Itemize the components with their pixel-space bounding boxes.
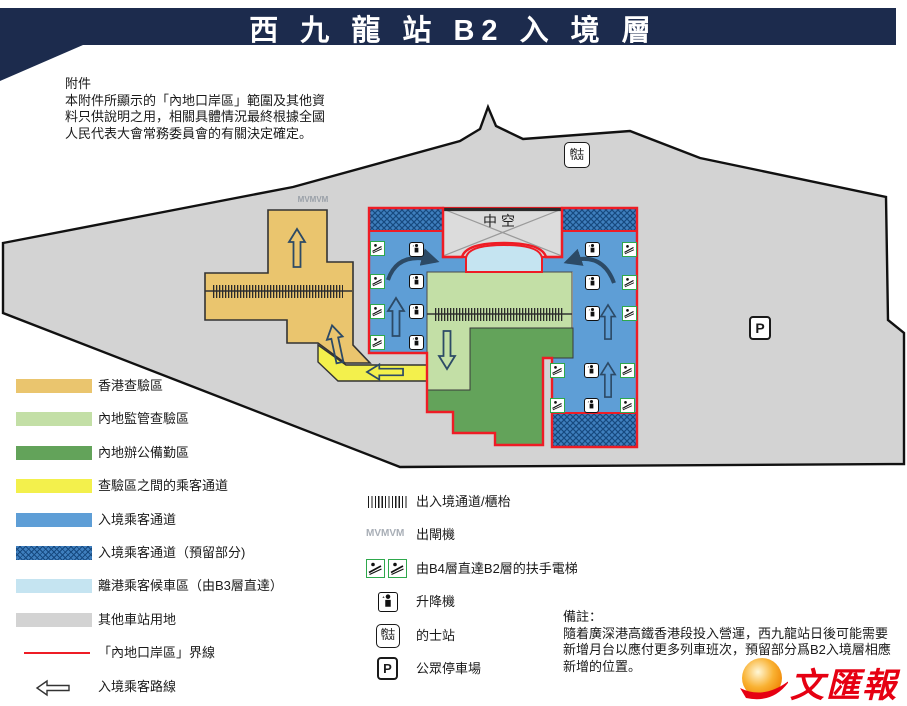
legend-swatch-lightgreen <box>16 412 92 426</box>
logo-sun-icon <box>736 654 788 706</box>
legend-item-departure-waiting: 離港乘客候車區（由B3層直達） <box>16 576 346 602</box>
symbol-legend-label: 出入境通道/櫃枱 <box>416 492 511 512</box>
symbol-legend-label: 升降機 <box>416 592 455 612</box>
exit-gates-symbol: MVMVM <box>366 528 404 539</box>
reserved-corridor-block <box>562 208 637 231</box>
counter-bar-hk <box>205 285 352 298</box>
taxi-icon-label: TAXI <box>570 156 583 162</box>
symbol-legend-label: 出閘機 <box>416 525 455 545</box>
boundary-line-swatch <box>24 652 90 654</box>
remark-note-heading: 備註： <box>563 609 907 626</box>
counters-symbol <box>368 496 408 508</box>
reserved-corridor-block <box>552 413 637 447</box>
legend-label: 「內地口岸區」界線 <box>98 643 215 663</box>
symbol-legend-item-counters: 出入境通道/櫃枱 <box>366 492 696 518</box>
legend-label: 入境乘客通道 <box>98 510 176 530</box>
legend-label: 查驗區之間的乘客通道 <box>98 476 228 496</box>
legend-swatch-yellow <box>16 479 92 493</box>
exit-gates-symbol: MVMVM <box>288 195 338 204</box>
route-arrow-swatch <box>34 679 72 702</box>
escalator-icon <box>366 559 385 578</box>
elevator-icon <box>378 592 398 612</box>
legend-item-arrival-reserved: 入境乘客通道（預留部分) <box>16 543 346 569</box>
legend-item-port-boundary: 「內地口岸區」界線 <box>16 643 346 669</box>
symbol-legend-label: 公眾停車場 <box>416 659 481 679</box>
legend-swatch-blue <box>16 513 92 527</box>
legend-item-hk-inspection: 香港查驗區 <box>16 376 346 402</box>
legend-label: 入境乘客路線 <box>98 677 176 697</box>
symbol-legend-label: 的士站 <box>416 626 455 646</box>
symbol-legend-item-escalators: 由B4層直達B2層的扶手電梯 <box>366 559 696 585</box>
legend-label: 香港查驗區 <box>98 376 163 396</box>
legend-item-mainland-inspection: 內地監管查驗區 <box>16 409 346 435</box>
legend-item-between-passage: 查驗區之間的乘客通道 <box>16 476 346 502</box>
logo-text: 文匯報 <box>790 658 898 706</box>
taxi-stand-icon: 的士TAXI <box>376 624 400 648</box>
taxi-stand-icon: 的士 TAXI <box>564 142 590 168</box>
legend-label: 內地辦公備勤區 <box>98 443 189 463</box>
escalator-icon <box>388 559 407 578</box>
remark-note-line: 隨着廣深港高鐵香港段投入營運，西九龍站日後可能需要 <box>563 626 907 643</box>
legend-item-arrival-corridor: 入境乘客通道 <box>16 510 346 536</box>
legend-swatch-hatch <box>16 546 92 560</box>
symbol-legend-label: 由B4層直達B2層的扶手電梯 <box>416 559 578 579</box>
counter-bar-mainland <box>427 308 572 321</box>
legend-item-mainland-office: 內地辦公備勤區 <box>16 443 346 469</box>
newspaper-graphic-page: 西 九 龍 站 B2 入 境 層 附件 本附件所顯示的「內地口岸區」範圍及其他資… <box>0 0 907 706</box>
parking-icon: P <box>749 316 771 340</box>
legend-swatch-gray <box>16 613 92 627</box>
legend-label: 入境乘客通道（預留部分) <box>98 543 245 563</box>
legend-swatch-cyan <box>16 579 92 593</box>
legend-item-other-station: 其他車站用地 <box>16 610 346 636</box>
wenweipo-logo: 文匯報 <box>736 654 907 706</box>
reserved-corridor-block <box>369 208 443 231</box>
legend-swatch-orange <box>16 379 92 393</box>
void-label: 中空 <box>470 211 532 231</box>
symbol-legend-item-exit-gates: MVMVM出閘機 <box>366 525 696 551</box>
taxi-icon-label: 的士 <box>570 149 584 156</box>
legend-label: 其他車站用地 <box>98 610 176 630</box>
legend-label: 離港乘客候車區（由B3層直達） <box>98 576 283 596</box>
parking-icon: P <box>377 657 398 680</box>
legend-item-arrival-route: 入境乘客路線 <box>16 677 346 703</box>
legend-swatch-green <box>16 446 92 460</box>
legend-label: 內地監管查驗區 <box>98 409 189 429</box>
departure-waiting-area <box>466 245 542 272</box>
